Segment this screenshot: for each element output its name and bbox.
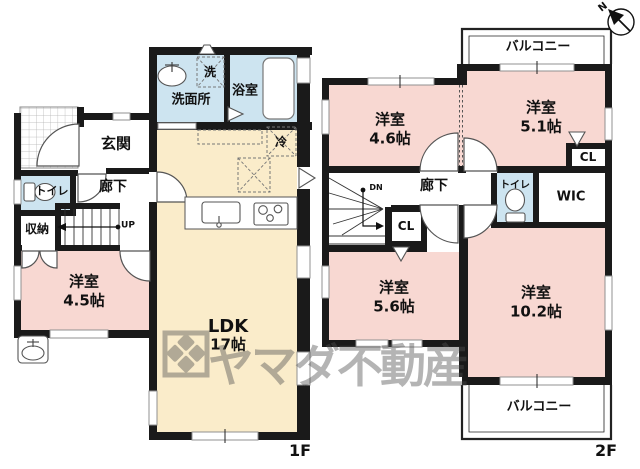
room-label-toilet-2f: トイレ: [500, 181, 530, 191]
compass-icon: [608, 9, 634, 35]
room-size-bedroom-1f: 4.5帖: [63, 294, 105, 309]
room-size-bedroom102: 10.2帖: [510, 305, 562, 320]
room-label-toilet-1f: トイレ: [36, 186, 69, 197]
room-label-hallway-2f: 廊下: [420, 179, 448, 193]
label-fridge: 冷: [275, 136, 287, 148]
room-label-bathroom: 浴室: [232, 85, 258, 98]
room-label-closet-upper: CL: [580, 151, 596, 163]
room-label-closet-lower: CL: [398, 220, 414, 232]
label-washer: 洗: [204, 66, 216, 78]
room-label-bedroom46: 洋室: [375, 113, 405, 128]
room-size-bedroom46: 4.6帖: [369, 132, 411, 147]
label-stairs-down: DN: [369, 184, 382, 192]
room-label-wic: WIC: [557, 191, 586, 204]
fixtures-2f: [506, 189, 526, 222]
label-stairs-up: UP: [121, 222, 135, 231]
floor-label-1f: 1F: [289, 443, 311, 459]
room-label-washroom: 洗面所: [171, 94, 210, 107]
watermark-text: ヤマダ不動産: [208, 330, 466, 396]
room-label-balcony-top: バルコニー: [506, 41, 571, 54]
room-size-bedroom56: 5.6帖: [373, 300, 415, 315]
room-label-bedroom51: 洋室: [526, 101, 556, 116]
room-label-storage: 収納: [25, 223, 49, 235]
floor-label-2f: 2F: [595, 443, 617, 459]
room-label-entrance: 玄関: [101, 137, 131, 152]
room-label-hallway-1f: 廊下: [99, 180, 127, 194]
floor-plan: 玄関 廊下 トイレ 収納 洗面所 洗 浴室 冷 LDK 17帖 洋室 4.5帖 …: [0, 0, 640, 469]
room-label-bedroom56: 洋室: [379, 281, 409, 296]
room-label-bedroom102: 洋室: [521, 286, 551, 301]
room-size-bedroom51: 5.1帖: [520, 120, 562, 135]
room-label-balcony-bottom: バルコニー: [507, 401, 572, 414]
room-label-bedroom-1f: 洋室: [69, 275, 99, 290]
